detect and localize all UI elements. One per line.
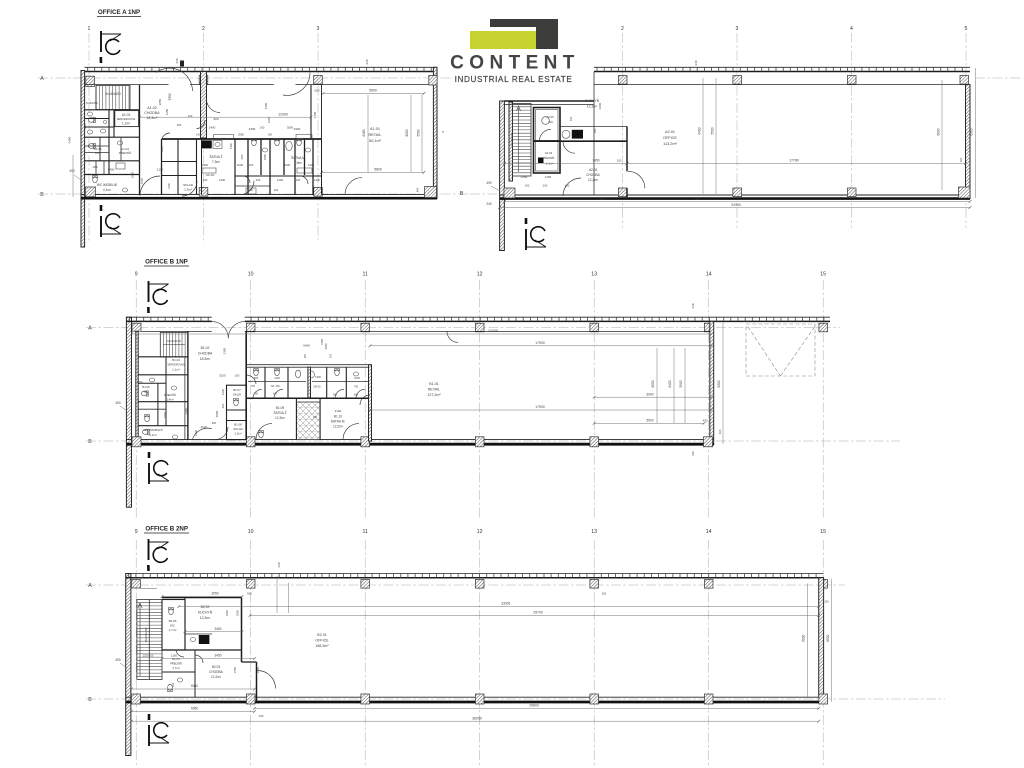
svg-text:3450: 3450 [214,627,221,631]
svg-text:A2.04: A2.04 [545,151,553,155]
svg-text:9x160x275: 9x160x275 [167,339,181,343]
svg-text:6350: 6350 [970,128,974,135]
svg-text:1430: 1430 [194,429,198,436]
svg-text:400: 400 [416,187,420,192]
svg-text:1150: 1150 [545,175,552,179]
svg-text:300: 300 [212,421,217,425]
svg-text:17780: 17780 [789,159,799,163]
svg-text:1,1m²: 1,1m² [122,122,130,126]
svg-text:6300: 6300 [717,380,721,387]
svg-text:5x160x300: 5x160x300 [105,92,121,96]
svg-text:12,2m²: 12,2m² [333,425,343,429]
svg-text:ŠATNA M.: ŠATNA M. [331,419,346,424]
svg-text:200: 200 [221,403,225,408]
svg-text:6000: 6000 [646,392,653,396]
svg-text:B2.02: B2.02 [201,605,210,609]
svg-text:5500: 5500 [711,127,715,134]
svg-text:6400: 6400 [698,127,702,134]
svg-text:1500: 1500 [140,178,144,184]
svg-text:490: 490 [115,401,121,405]
svg-text:2: 2 [202,26,205,32]
svg-text:1250 100: 1250 100 [143,655,154,658]
svg-text:500: 500 [314,89,319,93]
svg-text:1150: 1150 [171,654,177,658]
svg-text:5500: 5500 [417,129,421,136]
svg-text:5x160x300: 5x160x300 [86,102,98,105]
svg-text:1400: 1400 [196,133,202,137]
svg-text:1250: 1250 [92,166,98,169]
svg-text:200: 200 [304,353,307,358]
svg-text:2100: 2100 [167,183,171,189]
svg-text:A: A [88,583,92,589]
svg-text:INDUSTRIAL REAL ESTATE: INDUSTRIAL REAL ESTATE [455,75,573,84]
svg-text:100: 100 [600,197,605,201]
svg-text:24300: 24300 [731,203,741,207]
svg-text:2580: 2580 [238,133,244,137]
svg-text:113,2m²: 113,2m² [663,142,677,146]
svg-text:100: 100 [313,416,318,419]
svg-text:3350: 3350 [235,609,239,616]
svg-text:A1.03: A1.03 [122,113,131,117]
svg-text:6000: 6000 [651,380,655,387]
svg-text:100: 100 [824,600,829,604]
svg-text:5500: 5500 [679,380,683,387]
svg-text:6400: 6400 [303,343,310,347]
svg-text:17900: 17900 [535,341,545,345]
svg-text:WC IMOBILNÍ: WC IMOBILNÍ [97,183,117,187]
svg-text:5500: 5500 [646,418,653,422]
svg-text:6480: 6480 [184,407,188,414]
svg-text:12,3m²: 12,3m² [200,616,211,620]
svg-text:600: 600 [354,394,359,397]
svg-text:B: B [40,192,44,198]
svg-text:ŠATNA Ž: ŠATNA Ž [209,154,222,159]
svg-text:7,9m²: 7,9m² [294,161,302,165]
svg-text:11: 11 [363,529,368,535]
svg-text:10: 10 [248,272,254,278]
svg-text:15: 15 [820,272,826,278]
svg-text:1000: 1000 [354,376,360,380]
svg-text:12,2m²: 12,2m² [211,675,221,679]
svg-text:4,1m²: 4,1m² [103,188,111,192]
svg-text:100: 100 [171,682,175,687]
svg-text:3100: 3100 [335,409,342,413]
svg-text:100: 100 [203,178,208,182]
svg-text:B: B [88,439,92,445]
svg-text:3500: 3500 [287,126,294,130]
svg-text:OFFICE A 1NP: OFFICE A 1NP [98,9,140,16]
svg-text:4: 4 [850,26,853,32]
svg-text:2250: 2250 [324,343,328,350]
svg-text:6480: 6480 [68,136,72,143]
svg-text:12,3m²: 12,3m² [275,416,285,420]
svg-text:SERVEROVNA: SERVEROVNA [117,117,136,121]
svg-text:3450: 3450 [214,654,221,658]
svg-text:13: 13 [591,529,597,535]
svg-text:CONTENT: CONTENT [450,53,580,74]
svg-text:1100: 1100 [274,376,280,380]
svg-text:5500: 5500 [369,89,377,93]
svg-text:2350: 2350 [256,666,260,673]
svg-text:1400: 1400 [247,188,253,192]
svg-text:3050: 3050 [211,592,218,596]
svg-text:7,3m²: 7,3m² [212,160,220,164]
svg-text:1900: 1900 [315,375,321,379]
svg-text:B1.03: B1.03 [172,358,180,362]
svg-text:240: 240 [175,58,179,63]
svg-text:CHODBA: CHODBA [586,173,601,177]
svg-text:9: 9 [135,272,138,278]
svg-text:3050: 3050 [158,98,162,105]
svg-text:29800: 29800 [529,703,539,707]
svg-text:600: 600 [254,393,259,396]
svg-text:A: A [40,76,44,82]
svg-text:4,1m²: 4,1m² [149,433,157,437]
svg-text:≡: ≡ [442,130,444,134]
svg-text:100: 100 [329,353,332,358]
svg-text:11: 11 [363,272,368,278]
svg-text:B1.01: B1.01 [429,382,438,386]
svg-text:OFFICE B 2NP: OFFICE B 2NP [145,526,188,533]
svg-text:127,2m²: 127,2m² [427,393,441,397]
svg-text:2120: 2120 [201,425,208,429]
svg-text:400: 400 [703,418,708,422]
svg-text:6500: 6500 [826,634,830,641]
svg-text:A2.03: A2.03 [589,168,598,172]
svg-text:100: 100 [525,184,530,188]
svg-text:6400: 6400 [668,380,672,387]
svg-text:14x185x280: 14x185x280 [144,627,148,643]
svg-text:B2.05: B2.05 [169,619,177,623]
svg-text:B1.07: B1.07 [233,388,241,392]
svg-text:1430: 1430 [314,178,320,182]
svg-text:B1.02: B1.02 [201,346,210,350]
svg-text:A: A [88,325,92,331]
svg-text:3400: 3400 [249,127,256,131]
svg-text:1400: 1400 [209,126,216,130]
svg-text:A1.01: A1.01 [370,127,380,131]
svg-text:KUCHYŇ: KUCHYŇ [198,611,213,615]
svg-text:OFFICE B 1NP: OFFICE B 1NP [145,259,188,266]
svg-text:500: 500 [247,592,252,596]
svg-text:2150: 2150 [157,168,164,172]
svg-text:6000: 6000 [937,128,941,135]
svg-text:1,1m²: 1,1m² [172,368,180,372]
svg-text:300: 300 [268,134,273,137]
svg-text:3700: 3700 [313,111,317,118]
svg-text:100: 100 [569,116,573,121]
svg-text:OFFICE: OFFICE [663,136,677,140]
svg-text:100: 100 [249,163,254,167]
svg-text:B: B [460,191,464,197]
svg-text:490: 490 [115,658,121,662]
svg-text:240: 240 [694,60,698,65]
svg-text:1300: 1300 [221,388,225,395]
svg-text:3100: 3100 [264,102,268,109]
svg-text:18,3m²: 18,3m² [146,116,158,120]
svg-text:2400: 2400 [108,168,115,172]
svg-text:100: 100 [959,157,963,162]
svg-text:15: 15 [820,529,826,535]
svg-text:188,3m²: 188,3m² [315,644,329,648]
svg-text:100: 100 [543,184,548,188]
svg-text:3050: 3050 [215,410,219,417]
svg-text:900: 900 [213,117,218,121]
svg-text:CHODBA: CHODBA [198,352,213,356]
svg-text:490: 490 [486,181,492,185]
svg-text:WC IMOBILNÍ: WC IMOBILNÍ [143,428,162,432]
svg-text:OFFICE: OFFICE [315,639,329,643]
svg-text:B1.10: B1.10 [334,415,343,419]
svg-text:1750: 1750 [84,124,87,130]
svg-text:3460: 3460 [598,102,602,109]
svg-text:240: 240 [277,562,281,567]
svg-text:1,4m²: 1,4m² [166,398,173,402]
svg-text:KUCHYŇ: KUCHYŇ [585,99,600,103]
svg-text:100: 100 [256,178,261,182]
svg-text:3350: 3350 [222,347,226,354]
svg-text:6050: 6050 [191,707,198,711]
svg-text:B2.01: B2.01 [317,633,326,637]
svg-text:1,7m²: 1,7m² [172,666,179,670]
svg-text:100: 100 [260,126,265,130]
svg-text:1300: 1300 [160,146,164,152]
svg-text:1100: 1100 [277,178,283,182]
svg-text:100: 100 [617,159,622,163]
svg-text:CHODBA: CHODBA [209,670,224,674]
svg-text:3: 3 [736,26,739,32]
svg-text:WC: WC [170,624,176,628]
svg-text:B: B [88,697,92,703]
svg-text:18,3m²: 18,3m² [200,357,211,361]
svg-text:1400: 1400 [229,143,233,149]
svg-text:600: 600 [273,393,278,396]
svg-text:3150: 3150 [219,373,226,377]
svg-text:B1.08: B1.08 [234,423,242,427]
svg-text:1400: 1400 [219,178,226,182]
svg-text:SERVEROVNA: SERVEROVNA [167,364,185,367]
svg-text:13: 13 [591,272,597,278]
svg-text:5: 5 [965,26,968,32]
svg-text:B1.09: B1.09 [276,406,285,410]
svg-text:RETAIL: RETAIL [428,388,440,392]
svg-text:500: 500 [602,592,607,596]
svg-text:740: 740 [354,386,359,389]
svg-text:12,2m²: 12,2m² [588,178,598,182]
svg-text:3: 3 [317,26,320,32]
svg-text:100: 100 [718,429,722,434]
svg-text:490: 490 [69,169,75,173]
svg-text:700: 700 [251,385,256,388]
svg-text:A1.02: A1.02 [147,106,156,110]
svg-text:5800: 5800 [374,168,382,172]
svg-text:17900: 17900 [535,405,545,409]
svg-text:33351: 33351 [501,602,511,606]
svg-text:100: 100 [296,178,301,182]
svg-text:ŠATNA M: ŠATNA M [291,155,305,160]
svg-text:2750: 2750 [233,666,237,673]
svg-text:B1.05: B1.05 [142,385,150,389]
svg-text:1,7m²: 1,7m² [169,628,177,632]
svg-text:1600: 1600 [284,163,291,167]
svg-text:240: 240 [486,202,492,206]
svg-text:1400: 1400 [308,163,315,167]
svg-text:190: 190 [593,128,597,133]
svg-text:ÚKLID: ÚKLID [233,393,242,397]
svg-text:24300: 24300 [488,329,498,333]
svg-text:240: 240 [691,303,695,308]
svg-text:100: 100 [691,451,695,456]
svg-text:1: 1 [88,26,91,32]
svg-text:100: 100 [274,188,279,192]
svg-text:14: 14 [706,529,712,535]
svg-text:29700: 29700 [533,610,543,614]
svg-text:1,3m²: 1,3m² [234,432,241,436]
svg-text:290 50: 290 50 [313,387,321,389]
svg-text:6000: 6000 [405,129,409,136]
svg-text:1500: 1500 [294,127,301,131]
svg-text:3350: 3350 [225,609,229,616]
svg-text:9: 9 [135,529,138,535]
svg-text:1400: 1400 [202,163,209,167]
svg-text:100: 100 [235,373,240,377]
svg-text:12: 12 [477,272,483,278]
svg-text:1250: 1250 [521,175,528,179]
svg-text:100 150: 100 150 [206,174,215,177]
svg-text:1850: 1850 [263,153,267,160]
svg-text:100: 100 [259,714,264,718]
svg-text:6480: 6480 [362,129,366,136]
svg-text:ŠATNA Ž: ŠATNA Ž [273,410,286,415]
svg-text:1,3m²: 1,3m² [184,188,192,192]
svg-text:600: 600 [333,394,338,397]
svg-text:12300: 12300 [278,113,288,117]
svg-text:1800: 1800 [163,411,167,418]
svg-text:1150: 1150 [165,108,169,115]
svg-text:12,3m²: 12,3m² [587,105,598,109]
svg-text:1600: 1600 [237,163,244,167]
svg-text:B2.03: B2.03 [212,665,221,669]
svg-text:6050: 6050 [191,684,198,688]
svg-text:100: 100 [188,114,193,118]
svg-text:RETAIL: RETAIL [368,133,381,137]
svg-text:200: 200 [240,154,244,159]
svg-text:1800: 1800 [131,171,135,178]
svg-text:100: 100 [565,184,570,188]
svg-text:12: 12 [477,529,483,535]
svg-text:10: 10 [248,529,254,535]
svg-text:100: 100 [695,197,700,201]
svg-text:SKLAD: SKLAD [183,183,194,187]
svg-text:A2.01: A2.01 [665,130,675,134]
svg-text:240: 240 [365,59,369,64]
svg-text:CHODBA: CHODBA [144,111,160,115]
svg-text:14x185x280: 14x185x280 [510,132,514,148]
svg-text:3100: 3100 [267,116,271,123]
svg-text:700 -100: 700 -100 [270,386,280,388]
svg-text:36050: 36050 [472,716,482,720]
svg-text:3450: 3450 [592,159,599,163]
svg-text:1250: 1250 [137,380,143,384]
svg-text:3350: 3350 [168,93,172,100]
svg-text:60,1m²: 60,1m² [369,139,382,143]
svg-text:900: 900 [177,123,182,127]
svg-text:14: 14 [706,272,712,278]
svg-text:2: 2 [621,26,624,32]
svg-text:6000: 6000 [802,634,806,641]
svg-text:SKLAD: SKLAD [233,427,242,431]
